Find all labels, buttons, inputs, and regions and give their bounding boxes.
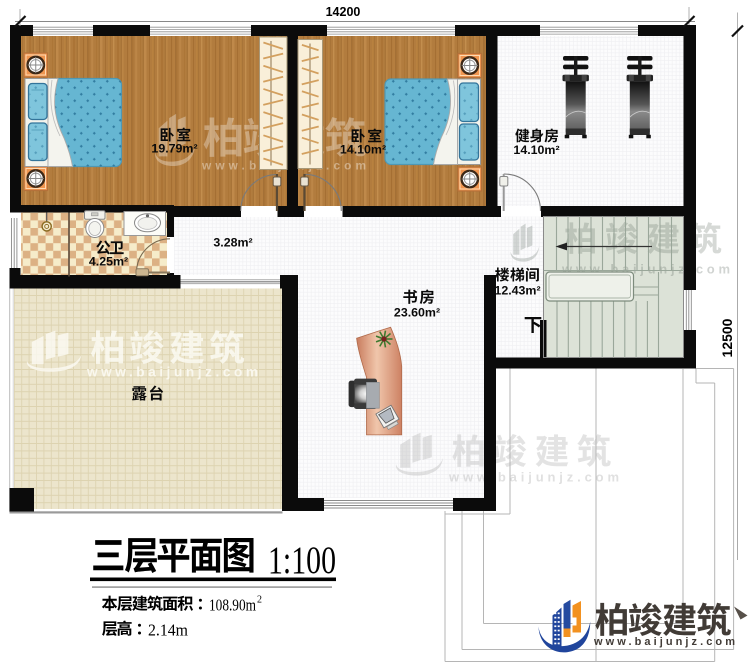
svg-text:108.90m: 108.90m [209, 596, 256, 615]
svg-text:2: 2 [257, 595, 262, 606]
svg-text:2.14m: 2.14m [148, 621, 188, 640]
svg-text:4.25m²: 4.25m² [89, 254, 128, 268]
svg-text:12.43m²: 12.43m² [494, 284, 540, 298]
svg-text:1:100: 1:100 [268, 539, 336, 582]
svg-text:19.79m²: 19.79m² [151, 141, 197, 155]
svg-text:23.60m²: 23.60m² [394, 306, 440, 320]
svg-text:3.28m²: 3.28m² [213, 236, 252, 250]
svg-text:www.baijunjz.com: www.baijunjz.com [593, 636, 735, 648]
svg-text:14.10m²: 14.10m² [513, 143, 559, 157]
svg-text:14200: 14200 [326, 5, 361, 19]
svg-text:12500: 12500 [719, 318, 735, 357]
svg-text:14.10m²: 14.10m² [340, 143, 386, 157]
